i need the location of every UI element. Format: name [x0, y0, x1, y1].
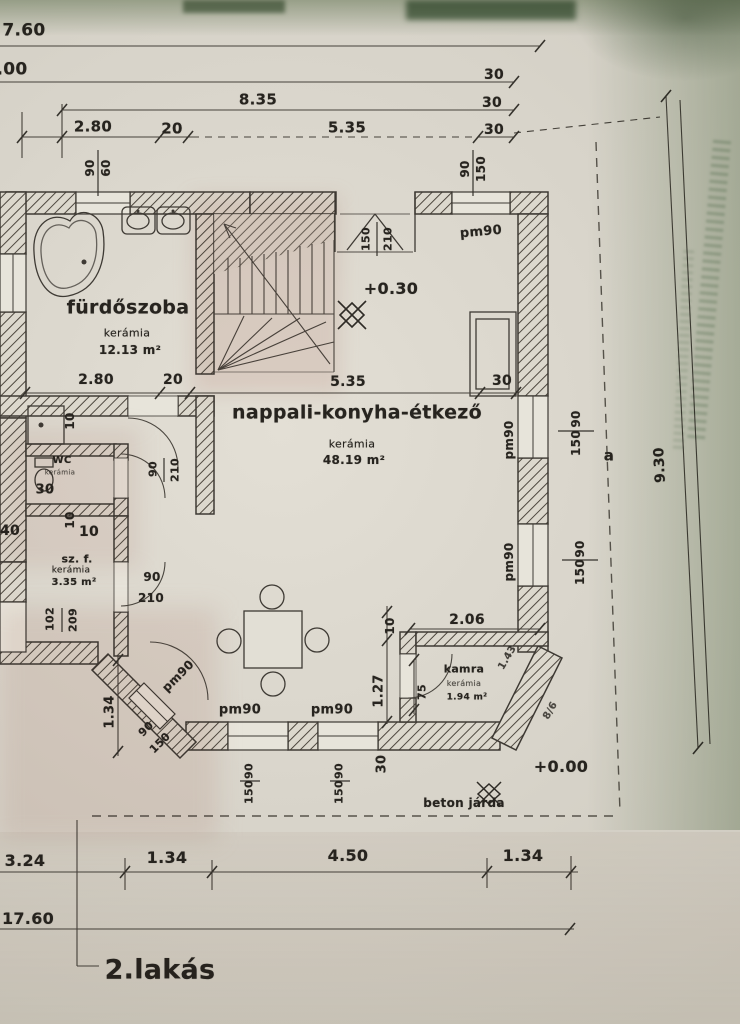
sill-right-lower: pm90	[503, 543, 515, 582]
win-bottom-a-h: 150	[244, 780, 255, 804]
dim-right-9-30: 9.30	[652, 447, 668, 483]
dim-bottom-30: 30	[376, 755, 389, 774]
dim-10-a: 10	[64, 412, 76, 429]
dim-top-20: 20	[161, 122, 182, 137]
dim-int-30: 30	[492, 374, 512, 388]
dim-chamfer: 8/6	[542, 701, 560, 722]
room-kamra-area: 1.94 m²	[447, 694, 488, 703]
dim-wc-30: 30	[36, 484, 55, 497]
dim-kamra-diag: 1.43	[497, 644, 519, 671]
dim-10-c: 10	[79, 525, 99, 539]
dim-b-3-24: 3.24	[5, 853, 46, 869]
dim-b-1-34-r: 1.34	[503, 848, 544, 864]
section-a: a	[604, 449, 614, 464]
win-diag-w: 90	[136, 719, 155, 738]
dim-10-b: 10	[64, 511, 76, 528]
plan-title: 2.lakás	[105, 957, 216, 984]
win-right-upper-w: 90	[570, 410, 582, 427]
room-szf-name: sz. f.	[61, 554, 92, 565]
dim-top-00: .00	[0, 62, 28, 79]
room-living-area: 48.19 m²	[323, 454, 385, 466]
win-bottom-b-h: 150	[334, 780, 345, 804]
dim-top-30-b: 30	[482, 96, 502, 110]
dim-int-20: 20	[163, 373, 183, 387]
win-bottom-b-w: 90	[334, 763, 345, 779]
plan-labels: 7.60.008.352.80205.353030309060901501502…	[0, 0, 740, 1024]
dim-2-06: 2.06	[449, 613, 485, 627]
door-szf-w: 90	[143, 571, 160, 583]
dim-top-2-80: 2.80	[74, 120, 112, 135]
floorplan-page: 7.60.008.352.80205.353030309060901501502…	[0, 0, 740, 1024]
door-left-h: 209	[68, 608, 79, 632]
dim-top-8-35: 8.35	[239, 93, 277, 108]
room-kamra-name: kamra	[444, 664, 485, 675]
sill-diag: pm90	[160, 658, 196, 694]
win-right-lower-h: 150	[574, 559, 586, 585]
room-living-name: nappali-konyha-étkező	[232, 404, 482, 423]
dim-75: 75	[417, 684, 428, 700]
win-bath-w: 90	[84, 159, 96, 176]
door-wc-w: 90	[148, 461, 159, 477]
win-topright-h: 150	[475, 156, 487, 182]
level-ground: +0.00	[534, 759, 588, 775]
room-bath-area: 12.13 m²	[99, 344, 161, 356]
room-bath-name: fürdőszoba	[67, 299, 190, 318]
dim-b-4-50: 4.50	[328, 848, 369, 864]
dim-top-5-35: 5.35	[328, 121, 366, 136]
room-wc-material: kerámia	[45, 470, 75, 477]
door-left-w: 102	[45, 607, 56, 631]
sill-right-upper: pm90	[503, 421, 515, 460]
dim-b-1-34-l: 1.34	[147, 850, 188, 866]
room-living-material: kerámia	[329, 439, 376, 450]
win-bath-h: 60	[100, 159, 112, 176]
dim-b-17-60: 17.60	[2, 911, 54, 927]
dim-top-30-c: 30	[484, 123, 504, 137]
room-bath-material: kerámia	[104, 328, 151, 339]
sill-bottom-b: pm90	[311, 704, 353, 717]
room-kamra-material: kerámia	[447, 680, 481, 688]
sill-entry: pm90	[459, 224, 502, 241]
win-diag-h: 150	[148, 731, 173, 756]
dim-left-40: 40	[0, 524, 20, 538]
dim-top-7-60: 7.60	[2, 23, 45, 40]
door-entry-h: 210	[383, 227, 394, 251]
win-right-upper-h: 150	[570, 430, 582, 456]
dim-1-27: 1.27	[373, 674, 386, 707]
win-topright-w: 90	[459, 160, 471, 177]
dim-kamra-10: 10	[384, 617, 396, 634]
dim-int-5-35: 5.35	[330, 375, 366, 389]
door-wc-h: 210	[170, 458, 181, 482]
level-upper: +0.30	[364, 281, 418, 297]
walkway-label: beton járda	[423, 797, 505, 809]
door-szf-h: 210	[138, 592, 164, 604]
win-right-lower-w: 90	[574, 540, 586, 557]
dim-1-34-left: 1.34	[104, 695, 117, 728]
win-bottom-a-w: 90	[244, 763, 255, 779]
door-entry-w: 150	[361, 227, 372, 251]
dim-int-2-80: 2.80	[78, 373, 114, 387]
room-wc-name: WC	[53, 456, 72, 466]
room-szf-area: 3.35 m²	[51, 578, 96, 588]
room-szf-material: kerámia	[52, 567, 91, 576]
dim-top-30-a: 30	[484, 68, 504, 82]
sill-bottom-a: pm90	[219, 704, 261, 717]
